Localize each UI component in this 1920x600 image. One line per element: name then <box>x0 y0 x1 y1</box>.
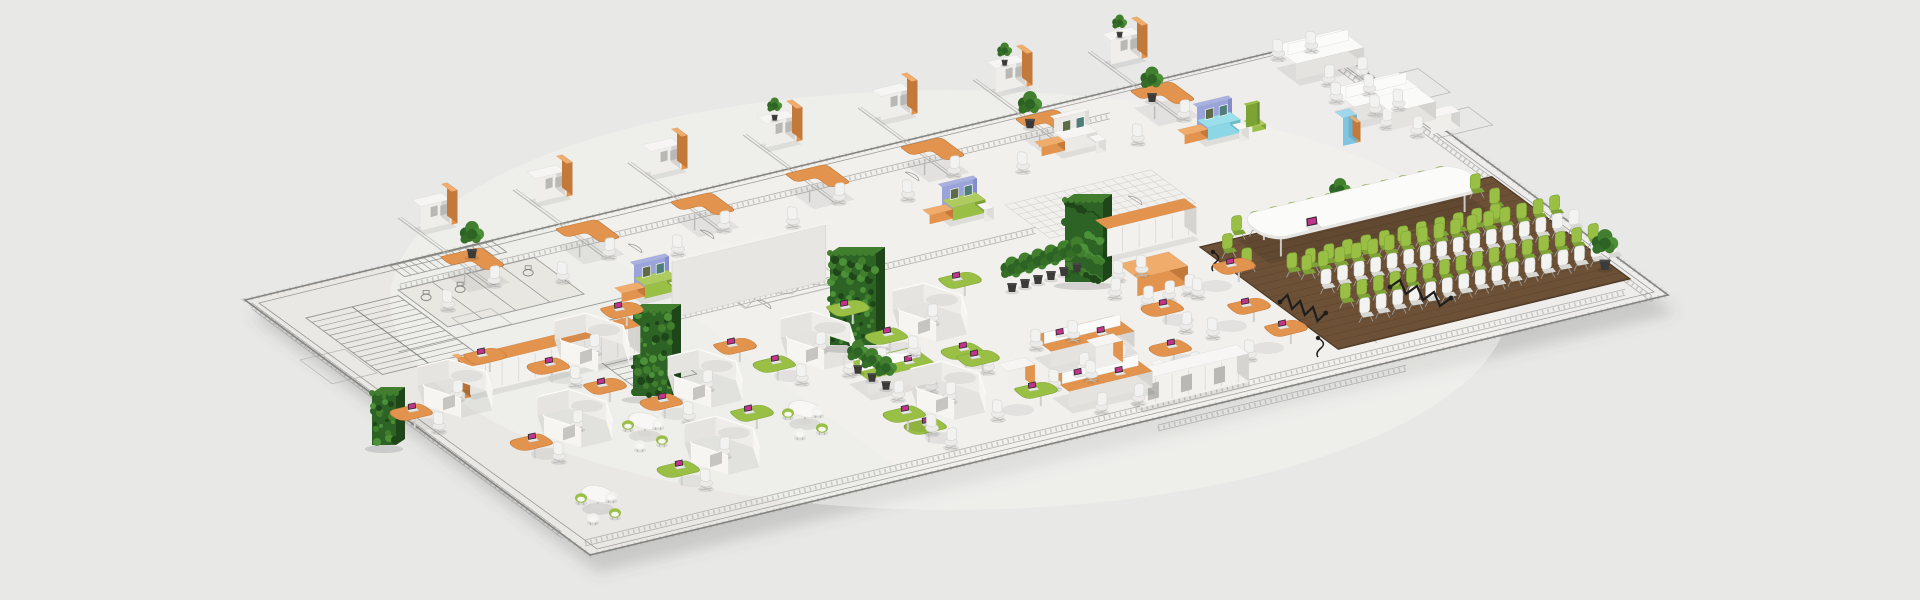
tub-chair <box>622 420 634 432</box>
tub-chair <box>609 508 621 520</box>
floorplan-render <box>0 0 1920 600</box>
tub-chair <box>794 428 806 440</box>
tub-chair <box>812 406 824 418</box>
tub-chair <box>634 440 646 452</box>
tub-chair <box>782 408 794 420</box>
floorplan-svg <box>0 0 1920 600</box>
tub-chair <box>816 423 828 435</box>
tub-chair <box>656 435 668 447</box>
tub-chair <box>575 493 587 505</box>
tub-chair <box>587 513 599 525</box>
tub-chair <box>652 418 664 430</box>
tub-chair <box>605 491 617 503</box>
